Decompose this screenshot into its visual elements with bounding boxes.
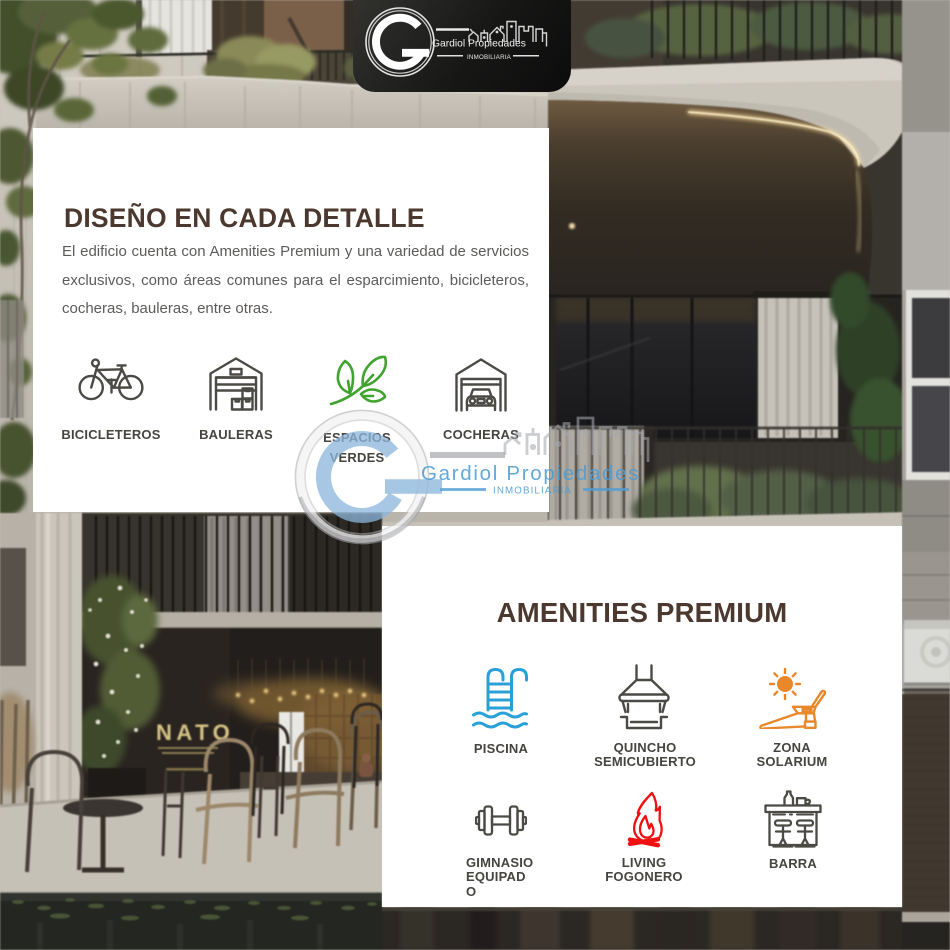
svg-text:INMOBILIARIA: INMOBILIARIA	[493, 486, 572, 497]
svg-text:Gardiol Propiedades: Gardiol Propiedades	[421, 462, 640, 485]
